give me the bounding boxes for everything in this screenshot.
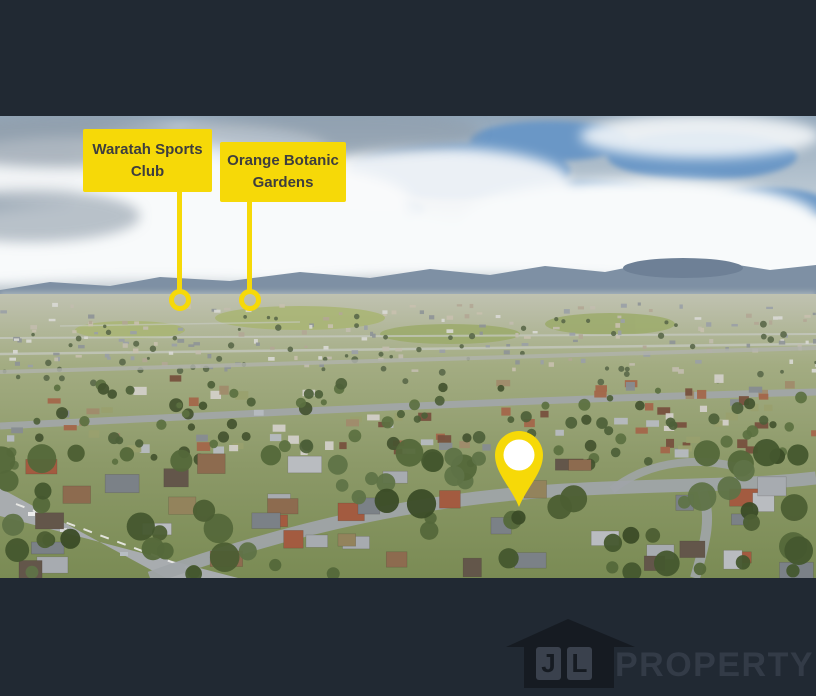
logo-letter-j: J — [541, 648, 555, 678]
top-letterbox-bar — [0, 0, 816, 116]
callout-label: Waratah Sports Club — [85, 139, 210, 183]
logo-letter-l: L — [572, 648, 588, 678]
logo-wordmark: PROPERTY — [615, 646, 814, 685]
callout-connector-line — [247, 202, 252, 290]
map-pin-icon — [489, 425, 549, 511]
callout-pointer-ring-icon — [239, 289, 261, 311]
callout-connector-line — [177, 192, 182, 290]
callout-pointer-ring-icon — [169, 289, 191, 311]
callout-waratah-sports-club: Waratah Sports Club — [83, 129, 212, 192]
callout-label: Orange Botanic Gardens — [222, 150, 344, 194]
flyer-canvas: Waratah Sports Club Orange Botanic Garde… — [0, 0, 816, 696]
callout-orange-botanic-gardens: Orange Botanic Gardens — [220, 142, 346, 202]
brand-logo: J L PROPERTY — [506, 616, 816, 692]
